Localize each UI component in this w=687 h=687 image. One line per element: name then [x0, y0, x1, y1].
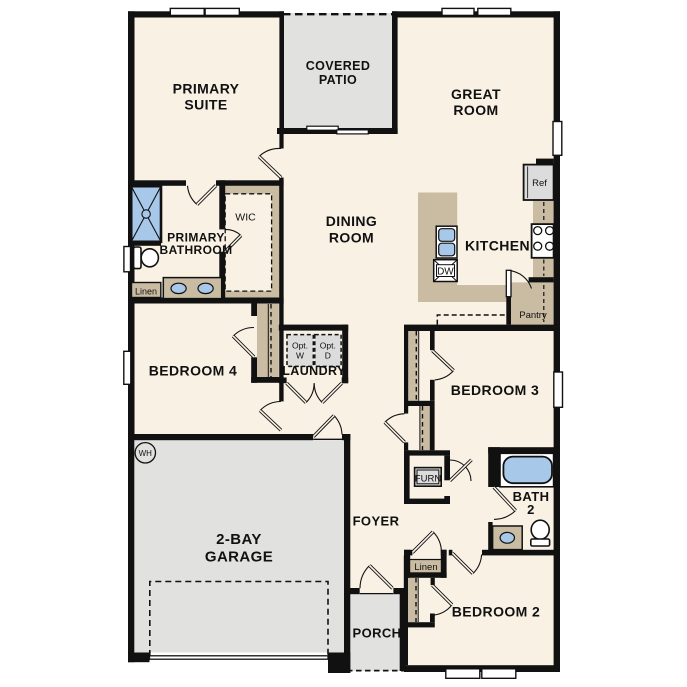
svg-text:Pantry: Pantry [519, 310, 547, 321]
svg-text:BATHROOM: BATHROOM [160, 243, 233, 257]
svg-text:BEDROOM 3: BEDROOM 3 [451, 382, 539, 398]
svg-text:GREAT: GREAT [451, 86, 501, 102]
svg-text:2: 2 [527, 502, 535, 517]
svg-text:Linen: Linen [135, 287, 157, 297]
svg-text:COVERED: COVERED [306, 59, 371, 73]
svg-text:2-BAY: 2-BAY [216, 531, 262, 548]
svg-text:DINING: DINING [326, 213, 377, 229]
svg-text:D: D [325, 351, 331, 361]
svg-text:SUITE: SUITE [184, 97, 227, 113]
svg-text:WIC: WIC [235, 212, 256, 224]
svg-text:WH: WH [139, 449, 153, 458]
svg-text:ROOM: ROOM [453, 102, 498, 118]
svg-text:LAUNDRY: LAUNDRY [282, 364, 346, 378]
svg-text:DW: DW [437, 267, 454, 278]
svg-text:FURN: FURN [415, 474, 442, 485]
svg-text:ROOM: ROOM [329, 230, 374, 246]
svg-text:KITCHEN: KITCHEN [465, 238, 530, 254]
svg-text:PORCH: PORCH [353, 626, 402, 641]
svg-text:GARAGE: GARAGE [205, 549, 273, 566]
svg-text:Opt.: Opt. [292, 341, 308, 351]
svg-text:FOYER: FOYER [353, 514, 400, 529]
svg-text:PATIO: PATIO [319, 73, 357, 87]
svg-text:BEDROOM 4: BEDROOM 4 [149, 363, 237, 379]
svg-text:Ref: Ref [532, 178, 547, 189]
svg-text:BEDROOM 2: BEDROOM 2 [452, 604, 540, 620]
svg-text:PRIMARY: PRIMARY [173, 81, 240, 97]
svg-text:W: W [296, 351, 304, 361]
svg-text:Linen: Linen [414, 562, 437, 573]
svg-text:Opt.: Opt. [320, 341, 336, 351]
